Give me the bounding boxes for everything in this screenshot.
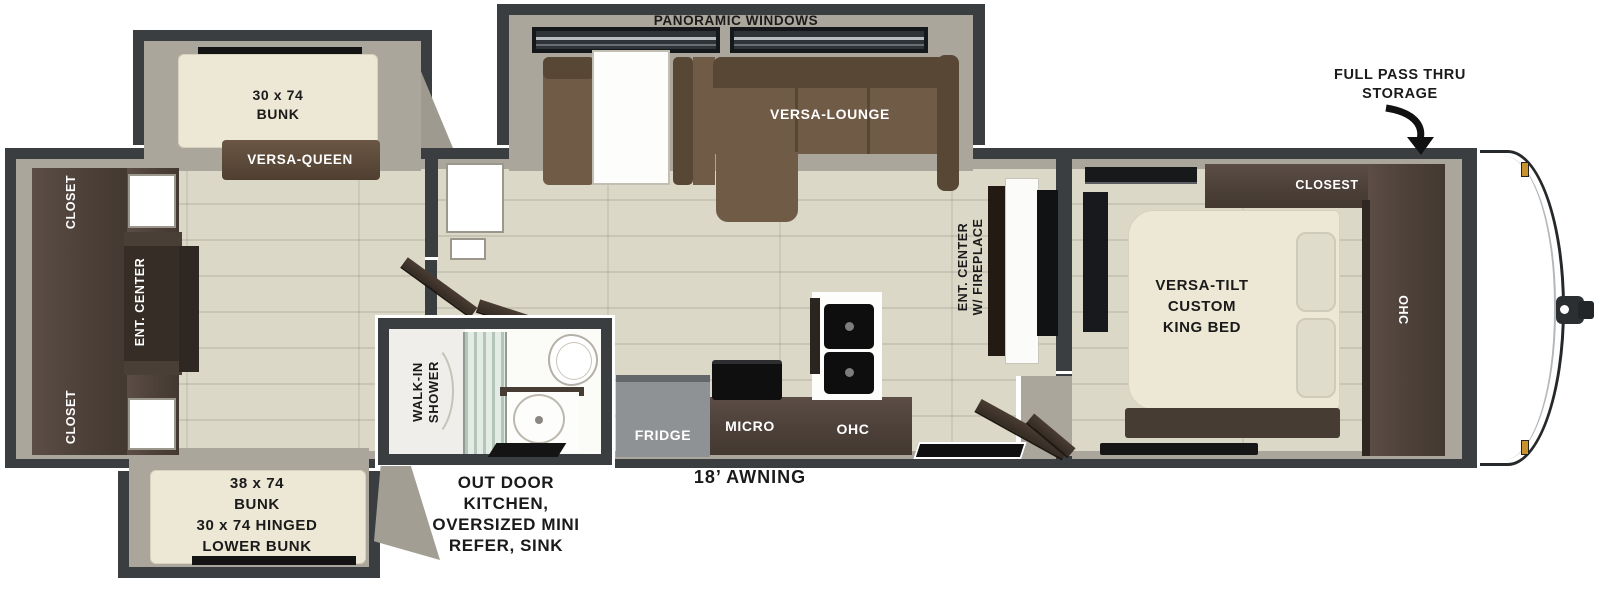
rear-closet-upper — [32, 168, 127, 455]
rear-cabinet-panel-top — [128, 174, 176, 228]
outdoor-kitchen-label: OUT DOOR KITCHEN, OVERSIZED MINI REFER, … — [416, 472, 596, 556]
closet-bottom-label: CLOSET — [63, 367, 79, 467]
bedroom-closet-label: CLOSEST — [1277, 177, 1377, 193]
rear-cabinet-panel-bottom — [128, 398, 176, 450]
pass-thru-storage-area — [1443, 159, 1462, 459]
hitch-hole — [1560, 305, 1569, 314]
bunk-bottom-label: 38 x 74 BUNK 30 x 74 HINGED LOWER BUNK — [157, 473, 357, 557]
bedroom-window — [1085, 167, 1197, 184]
lounge-left-armrest — [543, 57, 595, 79]
bedroom-ohc-label: OHC — [1395, 280, 1411, 340]
pass-thru-arrow-icon — [1378, 104, 1442, 156]
entry-threshold — [913, 442, 1027, 459]
microwave — [712, 360, 782, 400]
lounge-mid-seat — [693, 57, 715, 185]
hitch-jack — [1578, 301, 1594, 319]
wardrobe-column-edge — [1362, 200, 1370, 456]
sectional-right-armrest — [937, 55, 959, 191]
bunk-doorjamb-top — [425, 257, 438, 260]
fireplace-flame — [992, 206, 1001, 318]
hall-cabinet-small — [450, 238, 486, 260]
king-bed-pillow-bottom — [1296, 318, 1336, 398]
king-bed-label: VERSA-TILT CUSTOM KING BED — [1122, 275, 1282, 338]
floorplan-canvas: PANORAMIC WINDOWS VERSA-LOUNGE 30 x 74 B… — [0, 0, 1600, 611]
awning-label: 18’ AWNING — [670, 466, 830, 489]
lounge-mid-armrest — [673, 57, 693, 185]
versa-lounge-label: VERSA-LOUNGE — [730, 105, 930, 123]
bed-bench — [1125, 408, 1340, 438]
micro-label: MICRO — [702, 417, 798, 435]
walk-in-shower-label: WALK-IN SHOWER — [410, 342, 444, 442]
panoramic-windows-label: PANORAMIC WINDOWS — [586, 12, 886, 30]
king-bed-pillow-top — [1296, 232, 1336, 312]
bedroom-rug — [1100, 443, 1258, 455]
bathroom-floor-mat — [488, 443, 567, 457]
bedroom-doorjamb — [1056, 371, 1072, 374]
kitchen-sink-drain-lower — [845, 368, 854, 377]
bathroom-sink-drain — [535, 416, 543, 424]
fridge — [616, 375, 710, 457]
panoramic-window-right — [730, 27, 928, 53]
bunk-bottom-footboard — [192, 556, 356, 565]
marker-light-top — [1521, 162, 1529, 177]
living-tv — [1037, 190, 1058, 336]
fridge-label: FRIDGE — [613, 426, 713, 444]
ent-center-fireplace-label: ENT. CENTER W/ FIREPLACE — [956, 207, 988, 327]
ent-center-cabinet — [1005, 178, 1039, 364]
bunk-wall-upper — [425, 148, 438, 260]
bunk-top-label: 30 x 74 BUNK — [208, 86, 348, 124]
closet-top-label: CLOSET — [63, 152, 79, 252]
lounge-table — [592, 50, 670, 185]
bedroom-tv — [1083, 192, 1108, 332]
versa-queen-label: VERSA-QUEEN — [220, 151, 380, 169]
toilet-seat-line — [556, 342, 592, 380]
full-pass-thru-label: FULL PASS THRU STORAGE — [1310, 66, 1490, 104]
ohc-kitchen-label: OHC — [805, 420, 901, 438]
marker-light-bottom — [1521, 440, 1529, 455]
pantry-strip — [810, 298, 820, 374]
hall-cabinet — [446, 163, 504, 233]
kitchen-sink-drain-upper — [845, 322, 854, 331]
sectional-chaise — [716, 152, 798, 222]
sectional-back — [713, 57, 959, 91]
rear-cabinet-shadow — [179, 246, 199, 372]
bedroom-wall-upper — [1056, 148, 1072, 374]
ent-center-label: ENT. CENTER — [132, 247, 148, 357]
